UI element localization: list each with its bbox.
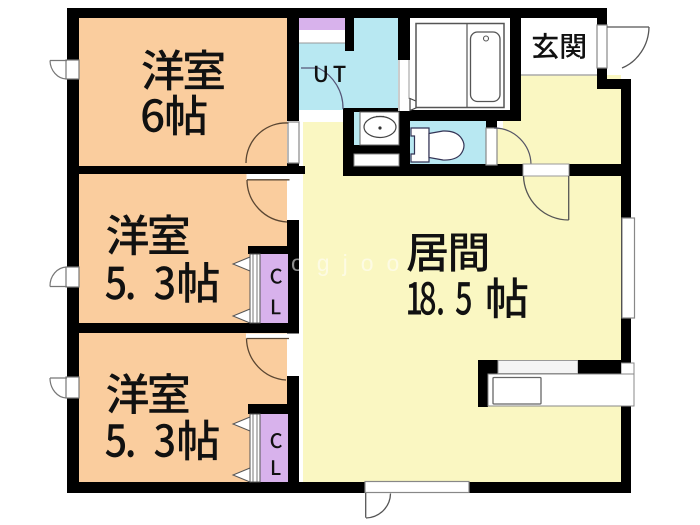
svg-text:ogjoo: ogjoo [291, 250, 412, 276]
